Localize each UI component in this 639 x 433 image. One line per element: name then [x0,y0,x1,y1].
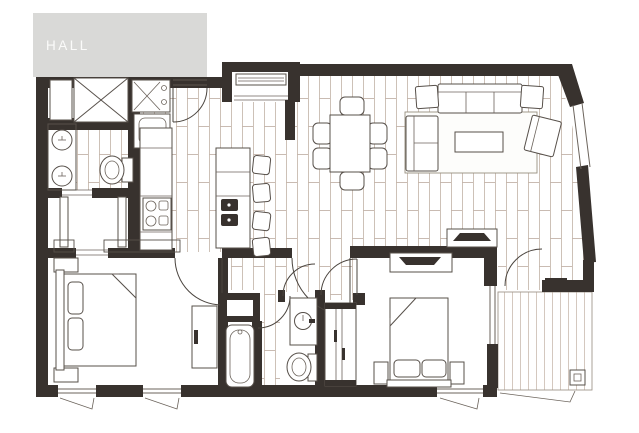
side-table-right [520,85,543,108]
dining-chair [313,123,332,144]
dining-chair [368,123,387,144]
dresser-bedroom1 [192,306,217,368]
bed1-headboard [56,270,64,370]
pillow [422,360,446,377]
nightstand [374,362,388,384]
wc-room [287,298,317,381]
window-bedroom1-a [58,385,96,409]
entry-door-leaf [236,74,286,85]
pillow [394,360,420,377]
tv-unit-living [447,229,497,247]
closet-x-storage [74,78,128,122]
dresser-tv-bedroom2 [390,253,452,272]
coffee-table [455,132,503,152]
door-bedroom1 [175,258,222,305]
floor-plan-page: HALL [0,0,639,433]
dining-chair [313,148,332,169]
sofa [438,84,522,113]
hall-banner: HALL [33,13,207,77]
wall-top-right [296,64,564,76]
balcony-door-leaf [545,278,567,286]
wall-left [36,64,48,397]
vestibule-leaf-right [118,197,126,247]
tv-bedroom2 [399,257,441,265]
vestibule-leaf-left [60,197,68,247]
pillow [68,282,83,314]
window-bedroom1-b [143,385,181,409]
window-bedroom2-bottom [437,385,483,409]
closet-small [50,80,72,120]
loveseat [406,116,438,171]
threshold-vestibule [76,250,108,255]
wall-entry-stub [285,100,295,140]
bed2-headboard [387,380,451,387]
dining-table [330,115,370,172]
balcony-deck [498,292,592,402]
toilet-laundry [100,156,133,184]
dining-chair [368,148,387,169]
floor-plan-drawing: HALL [0,0,639,433]
bathtub [226,325,254,387]
balcony-drain [570,370,585,385]
hall-label: HALL [46,38,90,53]
entry-niche [222,62,300,102]
side-table-left [415,85,438,108]
wardrobe-bedroom2 [325,303,356,386]
threshold-laundry [62,190,92,195]
kitchen-island [216,148,250,248]
dining-chair [340,172,364,190]
bedroom-1 [54,240,217,382]
wc-vanity [290,298,317,345]
bathroom [220,293,260,387]
washing-machine [132,80,170,112]
pillow [68,318,83,350]
nightstand [450,362,464,384]
toilet-wc [287,353,317,381]
window-bedroom2-right [490,286,495,344]
balcony-opening-mark [500,391,575,402]
dining-chair [340,97,364,115]
